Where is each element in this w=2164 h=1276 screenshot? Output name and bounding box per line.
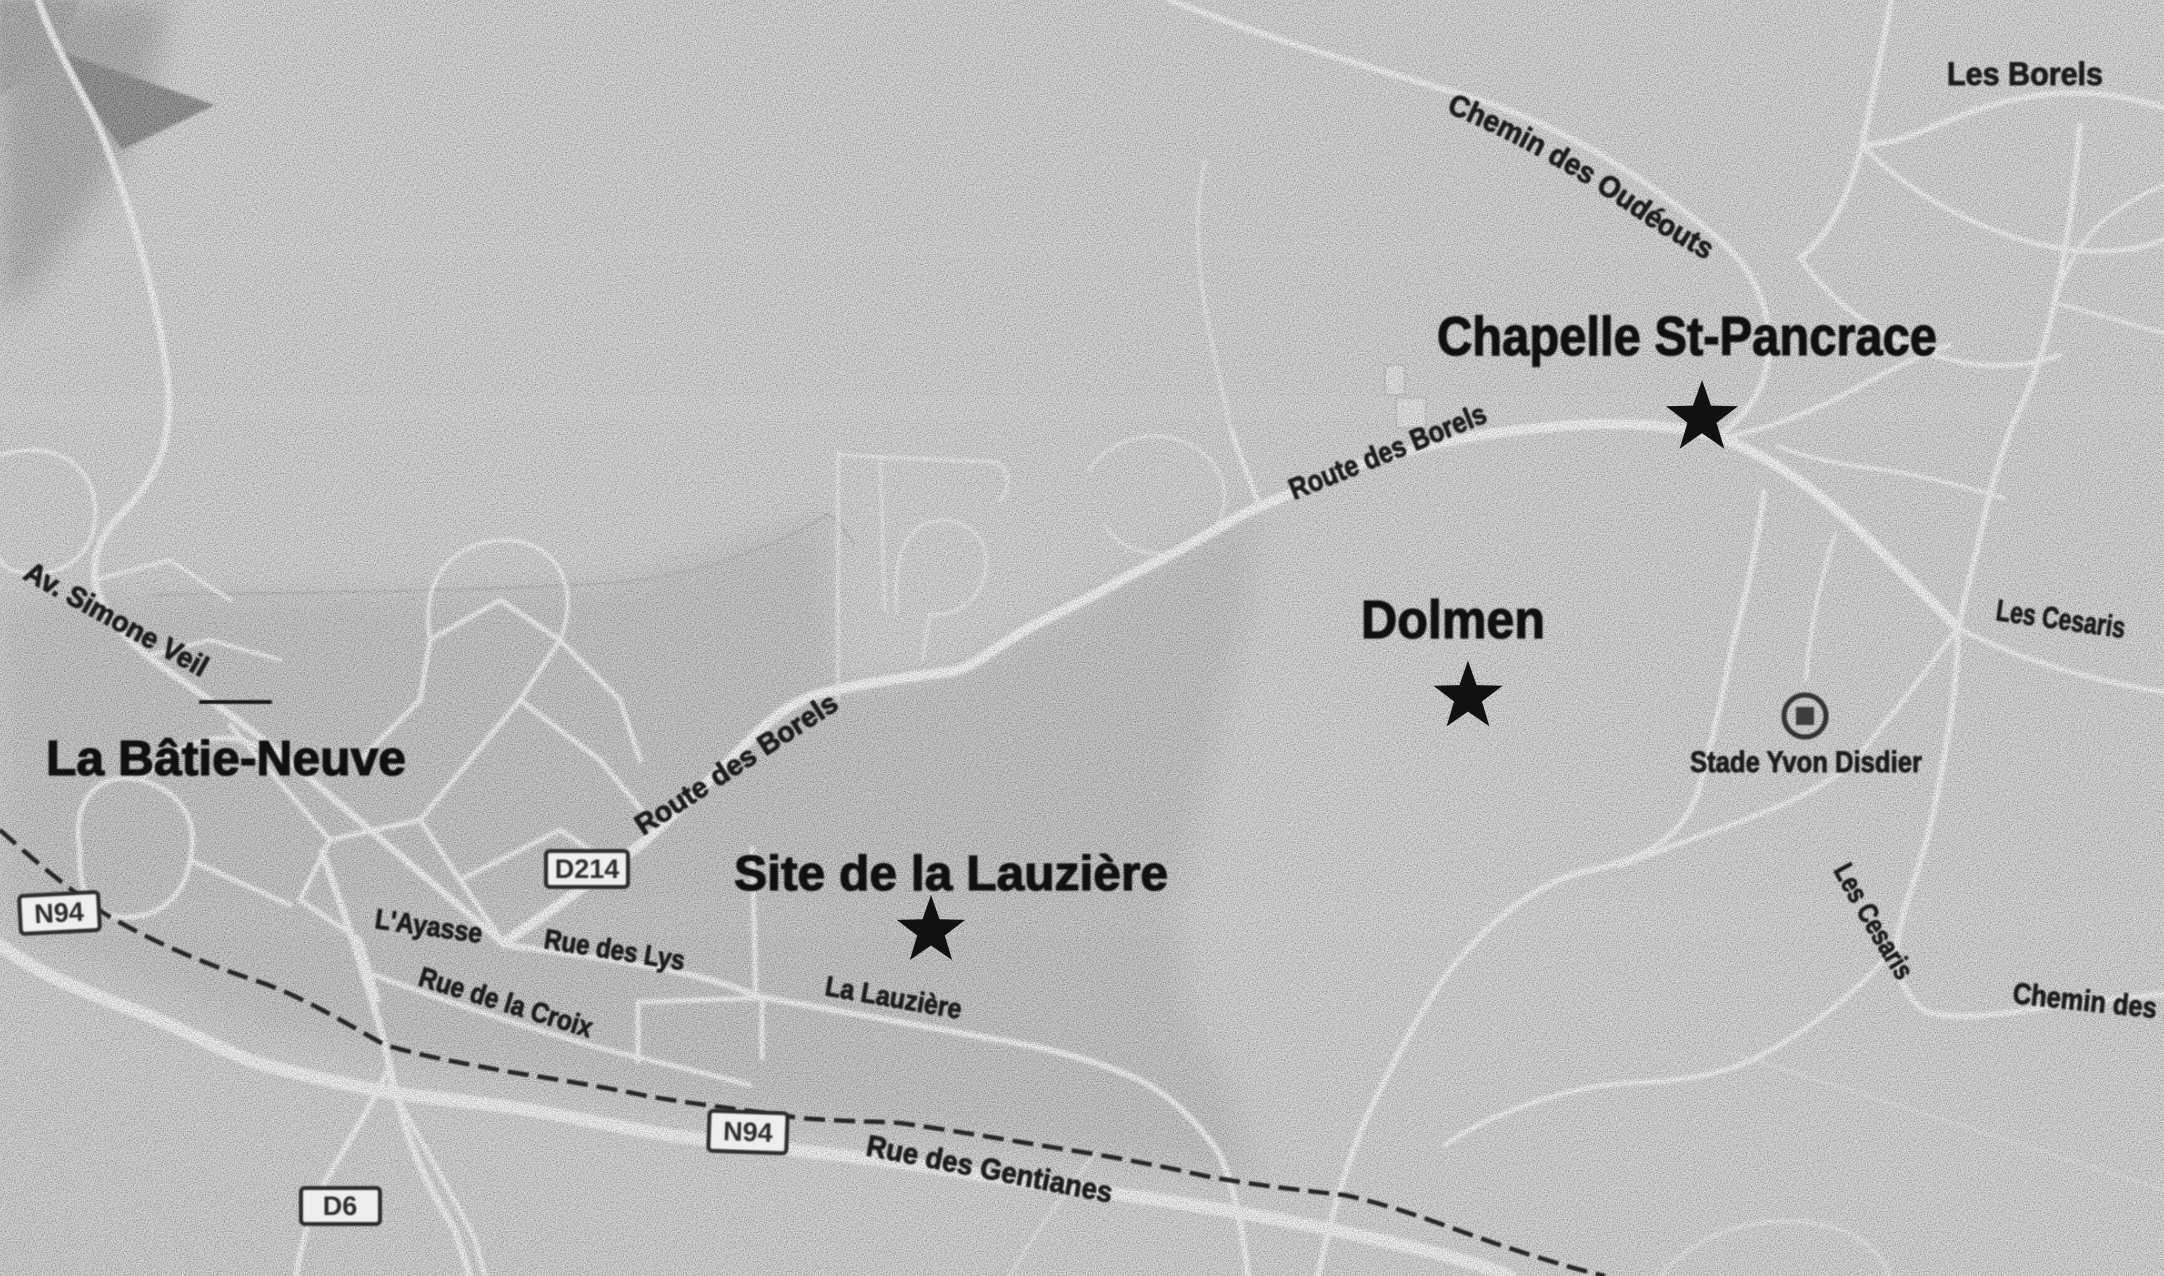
svg-text:La Bâtie-Neuve: La Bâtie-Neuve [46,732,406,786]
svg-text:Site de la Lauzière: Site de la Lauzière [734,847,1168,901]
svg-text:Chapelle St-Pancrace: Chapelle St-Pancrace [1437,305,1937,367]
svg-text:Stade Yvon Disdier: Stade Yvon Disdier [1690,746,1922,779]
svg-text:Dolmen: Dolmen [1361,590,1545,650]
svg-text:D214: D214 [555,854,620,884]
svg-text:Les Borels: Les Borels [1947,56,2103,92]
svg-text:D6: D6 [323,1191,358,1221]
svg-text:N94: N94 [33,897,84,930]
svg-text:N94: N94 [723,1116,774,1148]
